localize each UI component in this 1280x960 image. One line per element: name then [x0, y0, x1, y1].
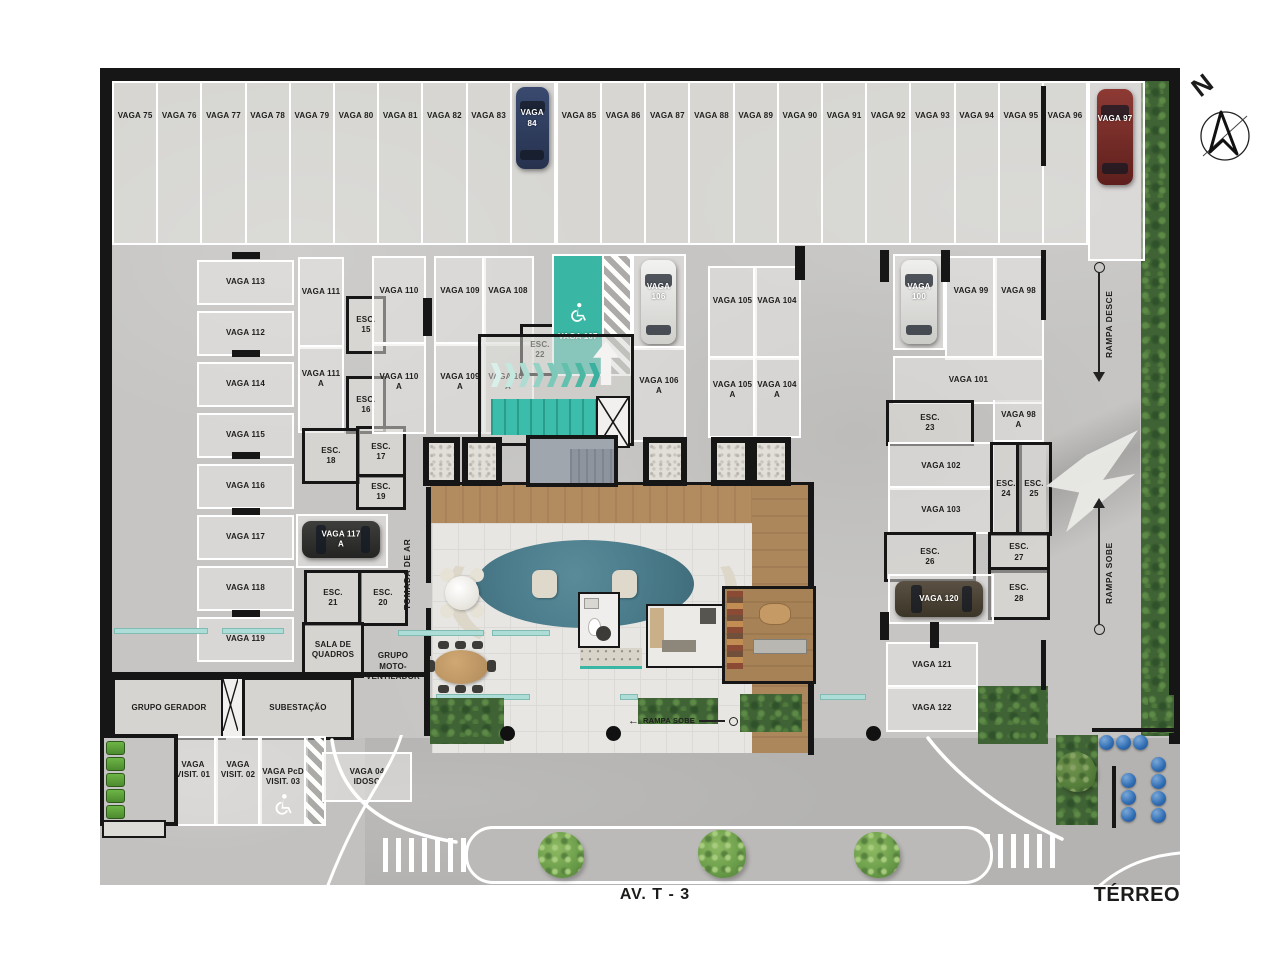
stall-label: VAGA 115 [226, 430, 265, 440]
wall-right [1169, 68, 1180, 744]
elevator-shaft [711, 437, 751, 486]
wall-left [100, 68, 112, 744]
left-stall-column: VAGA 113VAGA 112VAGA 114VAGA 115VAGA 116… [197, 260, 294, 662]
room-subestacao: SUBESTAÇÃO [242, 677, 354, 740]
parking-stall: VAGA 114 [197, 362, 294, 407]
stall-label: VAGA 79 [294, 83, 329, 243]
street-name-label: AV. T - 3 [560, 886, 750, 904]
ramp-end-circle [1094, 624, 1105, 635]
glass-wall [492, 630, 550, 636]
parking-stall-84: VAGA 84 [510, 81, 556, 245]
water-tanks [1120, 772, 1137, 823]
parking-stall: VAGA 113 [197, 260, 294, 305]
stall-vaga-105: VAGA 105 [708, 266, 757, 360]
car-top-view-red: VAGA 97 [1097, 89, 1133, 185]
parking-stall: VAGA 88 [688, 81, 734, 245]
stall-label: VAGA 83 [471, 83, 506, 243]
stall-label: VAGA 95 [1003, 83, 1038, 243]
stall-label: VAGA 97 [1098, 114, 1133, 124]
water-tanks [1150, 756, 1167, 824]
left-arrow-icon: ← [628, 715, 639, 727]
armchair [532, 570, 557, 598]
parking-stall: VAGA 82 [421, 81, 467, 245]
bike-rack-platform [491, 399, 613, 435]
parking-stall-97: VAGA 97 [1088, 81, 1145, 261]
parking-stall: VAGA 94 [954, 81, 1000, 245]
stall-label: VAGA 75 [118, 83, 153, 243]
planter [740, 694, 802, 732]
stall-label: VAGA 117 [226, 532, 265, 542]
stall-vaga-120: VAGA 120 [888, 574, 994, 624]
stall-label: VAGA 93 [915, 83, 950, 243]
stall-label: VAGA 77 [206, 83, 241, 243]
stall-vaga-98: VAGA 98 [993, 256, 1044, 360]
car-top-view-white: VAGA 100 [901, 260, 937, 344]
elevator-shaft [462, 437, 502, 486]
car-top-view-blue: VAGA 84 [516, 87, 549, 169]
parking-stall: VAGA 116 [197, 464, 294, 509]
circle-end-icon [729, 717, 738, 726]
water-tanks [1098, 734, 1149, 751]
parking-stall: VAGA 77 [200, 81, 246, 245]
room-esc-23: ESC. 23 [886, 400, 974, 446]
parking-stall: VAGA 91 [821, 81, 867, 245]
stall-label: VAGA 119 [226, 634, 265, 644]
elevator-shaft [423, 437, 460, 486]
glass-wall [222, 628, 284, 634]
stall-label: VAGA 80 [339, 83, 374, 243]
stall-label: VAGA 116 [226, 481, 265, 491]
stall-vaga-102: VAGA 102 [888, 442, 994, 490]
parking-stall: VAGA 78 [245, 81, 291, 245]
wall-top [100, 68, 1180, 81]
parking-stall: VAGA 119 [197, 617, 294, 662]
parking-stall: VAGA 80 [333, 81, 379, 245]
stall-vaga-104: VAGA 104 [753, 266, 801, 360]
elevator-shaft [643, 437, 687, 486]
room-esc-21: ESC. 21 [304, 570, 362, 626]
top-parking-row: VAGA 75VAGA 76VAGA 77VAGA 78VAGA 79VAGA … [112, 81, 1088, 245]
ramp-sobe-arrow [1098, 508, 1100, 624]
stall-label: VAGA 90 [783, 83, 818, 243]
parking-stall: VAGA 86 [600, 81, 646, 245]
stall-label: VAGA 84 [516, 108, 549, 129]
stall-label: VAGA 82 [427, 83, 462, 243]
floor-plan-canvas: VAGA 75VAGA 76VAGA 77VAGA 78VAGA 79VAGA … [0, 0, 1280, 960]
stall-label: VAGA 88 [694, 83, 729, 243]
stall-vaga-110a: VAGA 110 A [372, 342, 426, 434]
stall-label: VAGA 78 [250, 83, 285, 243]
compass-north-label: N [1185, 68, 1219, 104]
stall-label: VAGA 114 [226, 379, 265, 389]
parking-stall: VAGA 117 [197, 515, 294, 560]
stairwell [526, 435, 618, 487]
tree [1056, 752, 1096, 792]
stall-label: VAGA 96 [1048, 83, 1083, 243]
parking-stall: VAGA 93 [909, 81, 955, 245]
wheelchair-icon [567, 302, 589, 324]
meeting-table [428, 644, 494, 690]
stall-vaga-117a: VAGA 117 A [296, 514, 388, 568]
tomada-de-ar-label: TOMADA DE AR [402, 500, 412, 610]
stall-label: VAGA 91 [827, 83, 862, 243]
stall-vaga-106: VAGA 106 [632, 254, 686, 350]
stall-label: VAGA 86 [606, 83, 641, 243]
rampa-sobe-lobby: ← RAMPA SOBE [628, 714, 738, 728]
compass-rose-icon [1197, 106, 1253, 162]
round-table-set [436, 566, 488, 622]
room-grupo-gerador: GRUPO GERADOR [112, 677, 226, 740]
parking-stall: VAGA 118 [197, 566, 294, 611]
tree [698, 830, 746, 878]
glass-wall [620, 694, 638, 700]
stall-vaga-104a: VAGA 104 A [753, 356, 801, 438]
parking-stall: VAGA 95 [998, 81, 1044, 245]
car-top-view-dark: VAGA 117 A [302, 521, 380, 558]
stall-vaga-99: VAGA 99 [945, 256, 997, 360]
car-top-view-white: VAGA 106 [641, 260, 676, 344]
stall-label: VAGA 94 [959, 83, 994, 243]
stall-vaga-122: VAGA 122 [886, 685, 978, 732]
compass: N [1185, 62, 1275, 172]
room-esc-19: ESC. 19 [356, 474, 406, 510]
reception-counter [580, 648, 642, 669]
glass-wall [114, 628, 208, 634]
stall-vaga-110: VAGA 110 [372, 256, 426, 346]
parking-stall: VAGA 92 [865, 81, 911, 245]
stall-label: VAGA 118 [226, 583, 265, 593]
parking-stall: VAGA 87 [644, 81, 690, 245]
elevator-shaft [751, 437, 791, 486]
desk-chair [596, 626, 611, 641]
parking-stall: VAGA 85 [556, 81, 602, 245]
tree [854, 832, 900, 878]
parking-stall: VAGA 83 [466, 81, 512, 245]
stall-label: VAGA 85 [562, 83, 597, 243]
stall-vaga-111: VAGA 111 [298, 257, 344, 349]
stall-vaga-98a: VAGA 98 A [993, 400, 1044, 442]
crosswalk-right [985, 834, 1057, 868]
room-esc-18: ESC. 18 [302, 428, 360, 484]
crosswalk-left [383, 838, 475, 872]
parking-stall: VAGA 75 [112, 81, 158, 245]
parking-stall: VAGA 89 [733, 81, 779, 245]
stall-label: VAGA 87 [650, 83, 685, 243]
car-top-view-brown: VAGA 120 [895, 581, 983, 617]
parking-stall: VAGA 76 [156, 81, 202, 245]
glass-wall [398, 630, 484, 636]
arrow-up-icon [1093, 498, 1105, 508]
stall-vaga-111a: VAGA 111 A [298, 345, 344, 433]
glass-wall [820, 694, 866, 700]
hedge-right-strip [1141, 81, 1169, 736]
ramp-desce-arrow [1098, 272, 1100, 372]
room-esc-28: ESC. 28 [988, 567, 1050, 620]
stall-label: VAGA 89 [738, 83, 773, 243]
room-esc-20: ESC. 20 [358, 570, 408, 626]
parking-stall: VAGA 96 [1042, 81, 1088, 245]
bar-room [722, 586, 816, 684]
tree [538, 832, 584, 878]
parking-stall: VAGA 79 [289, 81, 335, 245]
stall-label: VAGA 92 [871, 83, 906, 243]
stall-vaga-100: VAGA 100 [893, 254, 945, 350]
page-title: TÉRREO [1020, 884, 1180, 907]
stall-label: VAGA 112 [226, 328, 265, 338]
stall-label: VAGA 113 [226, 277, 265, 287]
stall-vaga-121: VAGA 121 [886, 642, 978, 689]
parking-stall: VAGA 90 [777, 81, 823, 245]
stall-vaga-103: VAGA 103 [888, 486, 994, 534]
rampa-sobe-label: RAMPA SOBE [1104, 534, 1114, 604]
stall-vaga-105a: VAGA 105 A [708, 356, 757, 438]
parking-stall: VAGA 81 [377, 81, 423, 245]
direction-chevrons [491, 363, 600, 387]
stall-vaga-109: VAGA 109 [434, 256, 486, 346]
stall-label: VAGA 76 [162, 83, 197, 243]
rampa-desce-label: RAMPA DESCE [1104, 286, 1114, 358]
stall-label: VAGA 81 [383, 83, 418, 243]
stall-vaga-106a: VAGA 106 A [632, 346, 686, 442]
arrow-down-icon [1093, 372, 1105, 382]
room-grupo-moto-ventilador: GRUPO MOTO-VENTILADOR [352, 652, 434, 682]
stall-vaga-101: VAGA 101 [893, 356, 1044, 404]
kitchen-room [646, 604, 724, 668]
